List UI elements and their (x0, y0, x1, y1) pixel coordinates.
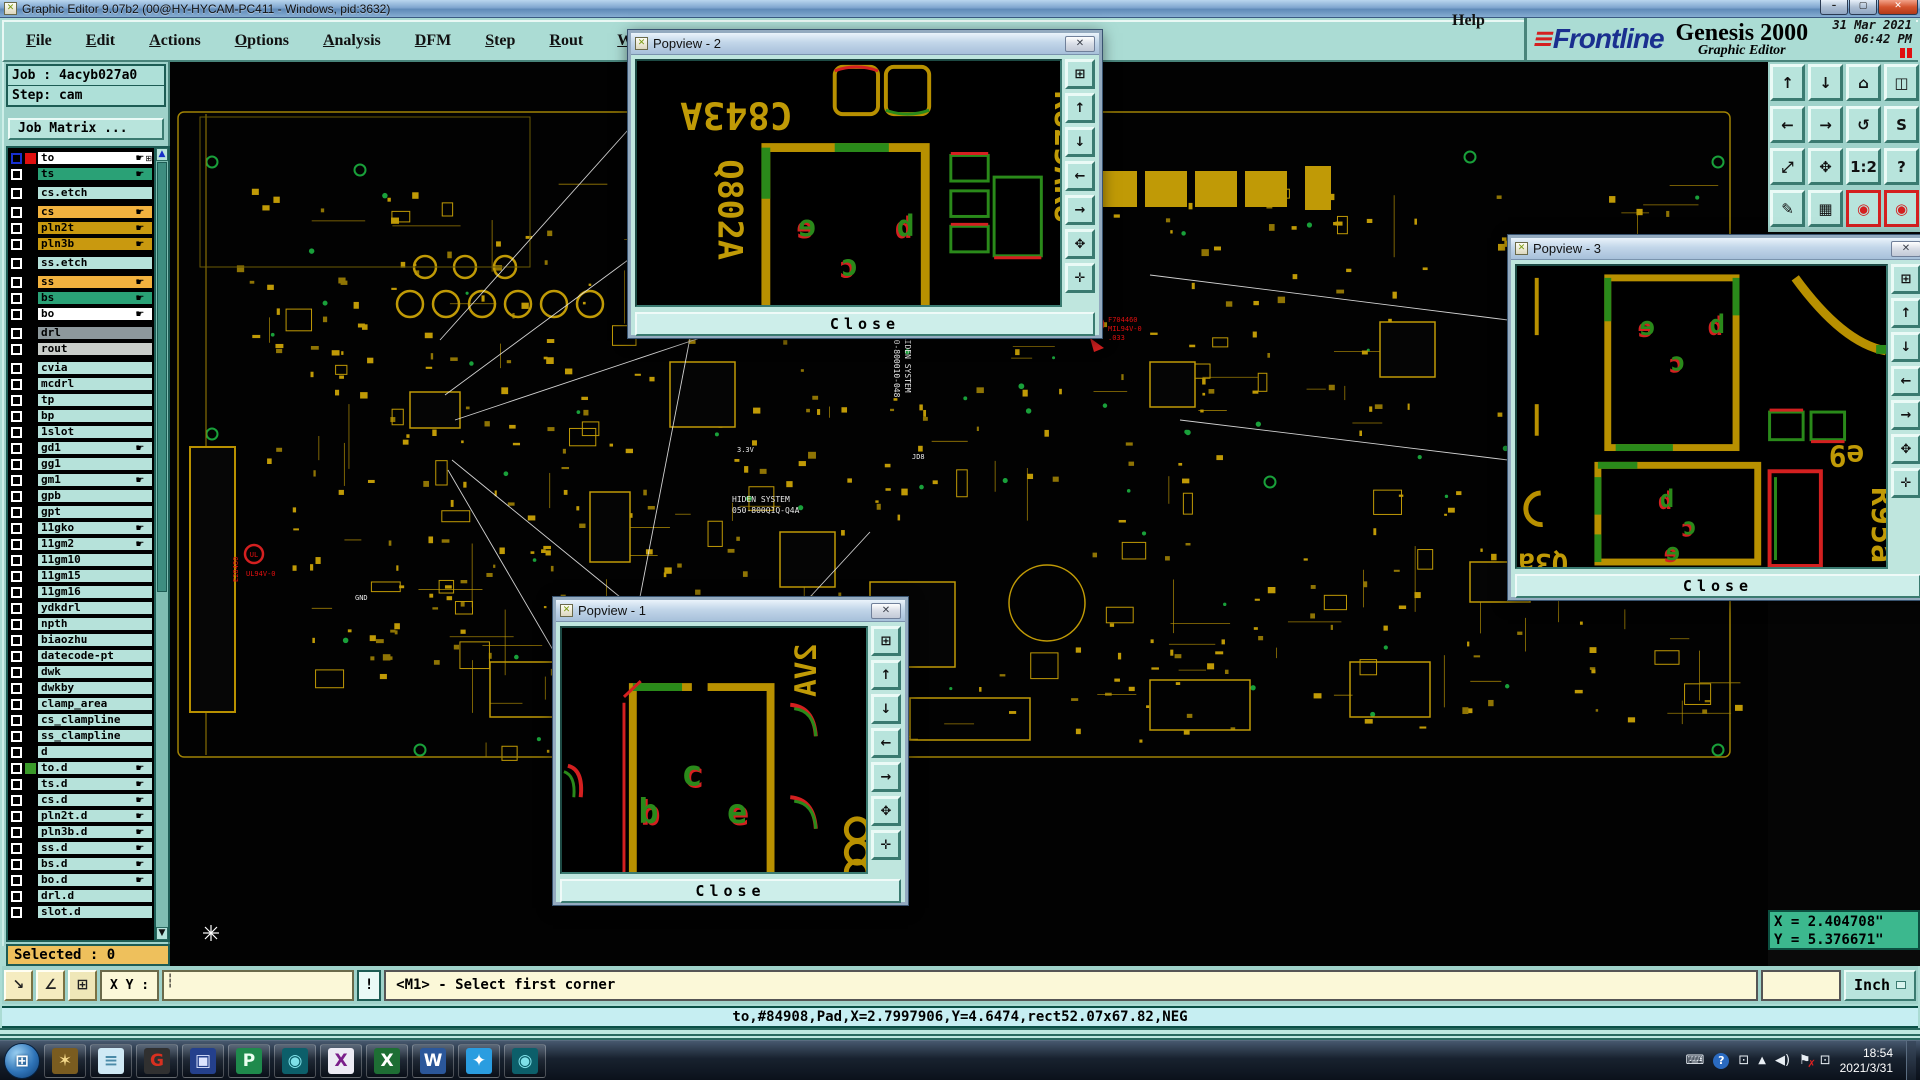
layer-row[interactable]: ss ☛ ⊞ (11, 276, 152, 288)
menu-item[interactable]: Options (235, 32, 289, 50)
layer-row[interactable]: ts ☛ ⊞ (11, 168, 152, 180)
layer-name[interactable]: gpb (41, 490, 135, 502)
layer-color-chip (25, 619, 36, 630)
layer-name[interactable]: 11gko (41, 522, 135, 534)
popview-3-close-button[interactable]: Close (1515, 574, 1920, 598)
center-view-button[interactable]: ✥ (1808, 148, 1843, 185)
layer-visibility-checkbox[interactable] (11, 239, 22, 250)
layer-row[interactable]: rout ☛ ⊞ (11, 343, 152, 355)
taskbar-app-p[interactable]: P (228, 1044, 270, 1078)
layer-name[interactable]: clamp_area (41, 698, 135, 710)
layer-row[interactable]: 11gm16 ☛ ⊞ (11, 586, 152, 598)
layer-name[interactable]: ts (41, 168, 135, 180)
center-button[interactable]: ✛ (871, 830, 901, 860)
layer-name[interactable]: bp (41, 410, 135, 422)
layer-row[interactable]: cs_clampline ☛ ⊞ (11, 714, 152, 726)
scroll-up-icon[interactable]: ▲ (156, 148, 168, 161)
layer-row[interactable]: ss.etch ☛ ⊞ (11, 257, 152, 269)
popview-tool-icon: ↑ (1901, 306, 1912, 321)
view-toolbar: ↑ ↓ ⌂ ◫ ← → (1768, 62, 1920, 232)
layer-color-chip (25, 395, 36, 406)
taskbar-app-icon: ◉ (512, 1048, 538, 1074)
frontline-wordmark: Frontline (1553, 23, 1664, 55)
scale-1-2-button[interactable]: 1:2 (1846, 148, 1881, 185)
layer-visibility-checkbox[interactable] (11, 188, 22, 199)
scroll-thumb[interactable] (157, 162, 167, 592)
query-button[interactable]: ? (1884, 148, 1919, 185)
layer-name[interactable]: npth (41, 618, 135, 630)
layer-visibility-checkbox[interactable] (11, 223, 22, 234)
layer-visibility-checkbox[interactable] (11, 875, 22, 886)
popview-1-titlebar[interactable]: ✕ Popview - 1 ✕ (556, 600, 905, 622)
layer-color-chip (25, 587, 36, 598)
layer-name[interactable]: slot.d (41, 906, 135, 918)
svg-text:e: e (1666, 538, 1680, 566)
zoom-fit-button[interactable]: ✥ (871, 796, 901, 826)
layer-row[interactable]: drl ☛ ⊞ (11, 327, 152, 339)
pan-up-button[interactable]: ↑ (871, 660, 901, 690)
popview-2-close-button[interactable]: Close (635, 312, 1095, 336)
taskbar-app-icon: P (236, 1048, 262, 1074)
popview-2-title: Popview - 2 (653, 36, 1060, 51)
layer-name[interactable]: cs (41, 206, 135, 218)
layer-name[interactable]: cs.etch (41, 187, 135, 199)
layer-scrollbar[interactable]: ▲ ▼ (154, 148, 168, 940)
layer-visibility-checkbox[interactable] (11, 427, 22, 438)
layer-name[interactable]: bs (41, 292, 135, 304)
layer-visibility-checkbox[interactable] (11, 603, 22, 614)
layer-row[interactable]: pln3b.d ☛ ⊞ (11, 826, 152, 838)
popview-2-titlebar[interactable]: ✕ Popview - 2 ✕ (631, 33, 1099, 55)
layer-color-chip (25, 555, 36, 566)
popview-1-toolbar: ⊞↑↓←→✥✛ (871, 626, 901, 874)
layer-visibility-checkbox[interactable] (11, 651, 22, 662)
pan-up-button[interactable]: ↑ (1065, 93, 1095, 123)
layer-name[interactable]: 11gm10 (41, 554, 135, 566)
taskbar-app-messenger[interactable]: ✦ (458, 1044, 500, 1078)
layer-name[interactable]: gg1 (41, 458, 135, 470)
pan-down-button[interactable]: ↓ (1891, 332, 1920, 362)
layer-name[interactable]: ss.d (41, 842, 135, 854)
scroll-down-icon[interactable]: ▼ (156, 927, 168, 940)
layer-row[interactable]: cs.d ☛ ⊞ (11, 794, 152, 806)
pan-up-button[interactable]: ↑ (1891, 298, 1920, 328)
pan-right-button[interactable]: → (871, 762, 901, 792)
layer-hand-icon: ☛ (135, 277, 144, 288)
layer-name[interactable]: 11gm2 (41, 538, 135, 550)
layer-row[interactable]: bo.d ☛ ⊞ (11, 874, 152, 886)
layer-row[interactable]: bp ☛ ⊞ (11, 410, 152, 422)
layer-name[interactable]: rout (41, 343, 135, 355)
layer-name[interactable]: datecode-pt (41, 650, 135, 662)
menu-item[interactable]: Step (485, 32, 515, 50)
hidden-icons-chevron[interactable]: ▲ (1758, 1055, 1766, 1066)
layer-color-chip (25, 571, 36, 582)
layer-visibility-checkbox[interactable] (11, 891, 22, 902)
menu-item[interactable]: Rout (549, 32, 583, 50)
layer-visibility-checkbox[interactable] (11, 907, 22, 918)
layer-visibility-checkbox[interactable] (11, 475, 22, 486)
close-icon[interactable]: ✕ (1891, 241, 1920, 257)
popview-2-window[interactable]: ✕ Popview - 2 ✕ C843A Q802A R825AR8 (628, 30, 1102, 338)
units-button[interactable]: Inch (1844, 970, 1916, 1001)
svg-text:c: c (841, 248, 859, 282)
popview-1-window[interactable]: ✕ Popview - 1 ✕ b b c c (553, 597, 908, 905)
layer-name[interactable]: tp (41, 394, 135, 406)
split-window-xy-button[interactable]: ◫ (1884, 64, 1919, 101)
layer-visibility-checkbox[interactable] (11, 827, 22, 838)
layer-visibility-checkbox[interactable] (11, 328, 22, 339)
popview-tool-icon: ✛ (881, 838, 892, 853)
layer-visibility-checkbox[interactable] (11, 635, 22, 646)
xy-input[interactable]: ┆ (162, 970, 354, 1001)
menu-item[interactable]: File (26, 32, 52, 50)
zoom-fit-button[interactable]: ✥ (1065, 229, 1095, 259)
layer-color-chip (25, 223, 36, 234)
gnd-label: GND (355, 594, 368, 602)
volume-icon[interactable]: ◀) (1775, 1053, 1790, 1068)
toolbar-icon: ↓ (1819, 74, 1832, 92)
popview-1-close-button[interactable]: Close (560, 879, 901, 903)
layer-row[interactable]: dwkby ☛ ⊞ (11, 682, 152, 694)
toolbar-icon: ↑ (1781, 74, 1794, 92)
taskbar-app-icon: ≡ (98, 1048, 124, 1074)
minimize-icon[interactable]: – (1820, 0, 1848, 15)
menu-item[interactable]: Actions (149, 32, 201, 50)
menu-item[interactable]: DFM (415, 32, 451, 50)
center-button[interactable]: ✛ (1065, 263, 1095, 293)
svg-text:b: b (639, 792, 659, 831)
layer-visibility-checkbox[interactable] (11, 587, 22, 598)
layer-visibility-checkbox[interactable] (11, 153, 22, 164)
layer-visibility-checkbox[interactable] (11, 507, 22, 518)
popview-3-canvas[interactable]: e e c c b b b b (1515, 264, 1888, 569)
pan-down-button[interactable]: ↓ (1808, 64, 1843, 101)
layer-color-chip (25, 207, 36, 218)
keyboard-tray-icon[interactable]: ⌨ (1686, 1053, 1705, 1068)
layer-visibility-checkbox[interactable] (11, 491, 22, 502)
taskbar-app-excel[interactable]: X (366, 1044, 408, 1078)
layer-row[interactable]: 11gm2 ☛ ⊞ (11, 538, 152, 550)
layer-name[interactable]: d (41, 746, 135, 758)
show-desktop-button[interactable] (1906, 1041, 1916, 1080)
layer-name[interactable]: gpt (41, 506, 135, 518)
toolbar-icon: ⤢ (1781, 158, 1793, 176)
layer-name[interactable]: drl.d (41, 890, 135, 902)
layer-color-chip (25, 667, 36, 678)
layer-color-chip (25, 309, 36, 320)
layer-name[interactable]: mcdrl (41, 378, 135, 390)
pause-icon[interactable] (1898, 47, 1912, 61)
layer-row[interactable]: bs.d ☛ ⊞ (11, 858, 152, 870)
layer-name[interactable]: ss.etch (41, 257, 135, 269)
measure-distance-icon[interactable]: ↘ (4, 970, 33, 1001)
job-matrix-button[interactable]: Job Matrix ... (8, 118, 164, 140)
layer-name[interactable]: cs_clampline (41, 714, 135, 726)
taskbar-app-cam[interactable]: ◉ (274, 1044, 316, 1078)
layer-row[interactable]: npth ☛ ⊞ (11, 618, 152, 630)
layer-hand-icon: ☛ (135, 309, 144, 320)
maximize-icon[interactable]: ▢ (1849, 0, 1877, 15)
close-icon[interactable]: ✕ (1065, 36, 1095, 52)
taskbar-app-save[interactable]: ▣ (182, 1044, 224, 1078)
layer-row[interactable]: slot.d ☛ ⊞ (11, 906, 152, 918)
layer-visibility-checkbox[interactable] (11, 619, 22, 630)
layer-name[interactable]: 11gm15 (41, 570, 135, 582)
toolbar-icon: → (1819, 116, 1832, 134)
layer-row[interactable]: pln2t.d ☛ ⊞ (11, 810, 152, 822)
layer-row[interactable]: ss.d ☛ ⊞ (11, 842, 152, 854)
layer-row[interactable]: 1slot ☛ ⊞ (11, 426, 152, 438)
taskbar-app-g[interactable]: G (136, 1044, 178, 1078)
layer-visibility-checkbox[interactable] (11, 779, 22, 790)
layer-name[interactable]: dwkby (41, 682, 135, 694)
layer-row[interactable]: dwk ☛ ⊞ (11, 666, 152, 678)
popview-3-titlebar[interactable]: ✕ Popview - 3 ✕ (1511, 238, 1920, 260)
layer-color-chip (25, 411, 36, 422)
home-view-button[interactable]: ⌂ (1846, 64, 1881, 101)
layer-row[interactable]: to ☛ ⊞ (11, 152, 152, 164)
layer-name[interactable]: bo.d (41, 874, 135, 886)
layer-visibility-checkbox[interactable] (11, 459, 22, 470)
taskbar-app-cam2[interactable]: ◉ (504, 1044, 546, 1078)
popview-2-toolbar: ⊞↑↓←→✥✛ (1065, 59, 1095, 307)
center-button[interactable]: ✛ (1891, 468, 1920, 498)
layer-row[interactable]: gm1 ☛ ⊞ (11, 474, 152, 486)
help-tray-icon[interactable]: ? (1713, 1053, 1729, 1069)
pan-left-button[interactable]: ← (1770, 106, 1805, 143)
previous-view-button[interactable]: ↺ (1846, 106, 1881, 143)
layer-name[interactable]: bs.d (41, 858, 135, 870)
layer-row[interactable]: bo ☛ ⊞ (11, 308, 152, 320)
layer-name[interactable]: pln2t (41, 222, 135, 234)
layer-color-chip (25, 169, 36, 180)
prompt-warning-icon[interactable]: ! (357, 970, 381, 1001)
popview-tool-icon: ⊞ (881, 634, 892, 649)
layer-name[interactable]: ss (41, 276, 135, 288)
layer-visibility-checkbox[interactable] (11, 699, 22, 710)
layer-row[interactable]: ts.d ☛ ⊞ (11, 778, 152, 790)
layer-name[interactable]: cvia (41, 362, 135, 374)
net-highlight-front-button[interactable]: ◉ (1846, 190, 1881, 227)
layer-visibility-checkbox[interactable] (11, 667, 22, 678)
popview-2-canvas[interactable]: C843A Q802A R825AR8 e e c c (635, 59, 1062, 307)
layer-name[interactable]: cs.d (41, 794, 135, 806)
layer-color-chip (25, 795, 36, 806)
layer-name[interactable]: to (41, 152, 135, 164)
taskbar-app-icon: X (328, 1048, 354, 1074)
start-button[interactable]: ⊞ (4, 1043, 40, 1079)
pan-left-button[interactable]: ← (1065, 161, 1095, 191)
layer-visibility-checkbox[interactable] (11, 555, 22, 566)
layer-visibility-checkbox[interactable] (11, 395, 22, 406)
layer-color-chip (25, 779, 36, 790)
pan-right-button[interactable]: → (1065, 195, 1095, 225)
layer-visibility-checkbox[interactable] (11, 747, 22, 758)
detach-view-button[interactable]: ⊞ (1065, 59, 1095, 89)
layer-row[interactable]: bs ☛ ⊞ (11, 292, 152, 304)
clock[interactable]: 18:542021/3/31 (1840, 1046, 1897, 1076)
layer-name[interactable]: to.d (41, 762, 135, 774)
layer-row[interactable]: gd1 ☛ ⊞ (11, 442, 152, 454)
edge-connector (190, 447, 235, 712)
layer-color-chip (25, 603, 36, 614)
popview-tool-icon: ✥ (1075, 237, 1086, 252)
pan-down-button[interactable]: ↓ (1065, 127, 1095, 157)
pan-right-button[interactable]: → (1808, 106, 1843, 143)
svg-text:Q3a: Q3a (1518, 547, 1568, 569)
taskbar-app-xserver[interactable]: X (320, 1044, 362, 1078)
pan-left-button[interactable]: ← (1891, 366, 1920, 396)
close-icon[interactable]: ✕ (1878, 0, 1918, 15)
layer-visibility-checkbox[interactable] (11, 443, 22, 454)
layer-row[interactable]: gg1 ☛ ⊞ (11, 458, 152, 470)
layer-row[interactable]: datecode-pt ☛ ⊞ (11, 650, 152, 662)
layer-name[interactable]: 11gm16 (41, 586, 135, 598)
layer-row[interactable]: pln3b ☛ ⊞ (11, 238, 152, 250)
layer-name[interactable]: gd1 (41, 442, 135, 454)
layer-name[interactable]: ydkdrl (41, 602, 135, 614)
window-titlebar[interactable]: ✕ Graphic Editor 9.07b2 (00@HY-HYCAM-PC4… (0, 0, 1920, 18)
serpentine-button[interactable]: S (1884, 106, 1919, 143)
layer-visibility-checkbox[interactable] (11, 795, 22, 806)
layer-color-chip (25, 827, 36, 838)
layer-color-chip (25, 843, 36, 854)
layer-row[interactable]: drl.d ☛ ⊞ (11, 890, 152, 902)
layer-visibility-checkbox[interactable] (11, 169, 22, 180)
toolbar-icon: ✎ (1781, 200, 1794, 218)
layer-row[interactable]: 11gko ☛ ⊞ (11, 522, 152, 534)
layer-row[interactable]: clamp_area ☛ ⊞ (11, 698, 152, 710)
layer-row[interactable]: d ☛ ⊞ (11, 746, 152, 758)
layer-visibility-checkbox[interactable] (11, 731, 22, 742)
prompt-message: <M1> - Select first corner (384, 970, 1758, 1001)
layer-row[interactable]: biaozhu ☛ ⊞ (11, 634, 152, 646)
matrix-grid-icon[interactable]: ⊞ (68, 970, 97, 1001)
layer-visibility-checkbox[interactable] (11, 539, 22, 550)
layer-row[interactable]: ydkdrl ☛ ⊞ (11, 602, 152, 614)
layer-visibility-checkbox[interactable] (11, 859, 22, 870)
pan-up-button[interactable]: ↑ (1770, 64, 1805, 101)
layer-name[interactable]: 1slot (41, 426, 135, 438)
layer-row[interactable]: 11gm15 ☛ ⊞ (11, 570, 152, 582)
popview-1-canvas[interactable]: b b c c e e 2VA (560, 626, 868, 874)
menu-item[interactable]: Edit (86, 32, 115, 50)
layer-name[interactable]: dwk (41, 666, 135, 678)
pan-left-button[interactable]: ← (871, 728, 901, 758)
layer-visibility-checkbox[interactable] (11, 571, 22, 582)
layer-row[interactable]: to.d ☛ ⊞ (11, 762, 152, 774)
layer-visibility-checkbox[interactable] (11, 363, 22, 374)
layer-row[interactable]: mcdrl ☛ ⊞ (11, 378, 152, 390)
layer-color-chip (25, 491, 36, 502)
measure-angle-icon[interactable]: ∠ (36, 970, 65, 1001)
close-icon[interactable]: ✕ (871, 603, 901, 619)
layer-name[interactable]: pln3b (41, 238, 135, 250)
layer-row[interactable]: pln2t ☛ ⊞ (11, 222, 152, 234)
svg-text:E28480: E28480 (232, 557, 240, 582)
svg-text:e: e (1640, 312, 1655, 342)
action-center-flag-icon[interactable]: ⚑✗ (1799, 1053, 1811, 1068)
layer-visibility-checkbox[interactable] (11, 523, 22, 534)
layer-name[interactable]: pln2t.d (41, 810, 135, 822)
taskbar-app-notes[interactable]: ≡ (90, 1044, 132, 1078)
layer-row[interactable]: ss_clampline ☛ ⊞ (11, 730, 152, 742)
detach-view-button[interactable]: ⊞ (871, 626, 901, 656)
layer-row[interactable]: gpt ☛ ⊞ (11, 506, 152, 518)
layer-visibility-checkbox[interactable] (11, 258, 22, 269)
zoom-fit-button[interactable]: ✥ (1891, 434, 1920, 464)
layer-row[interactable]: tp ☛ ⊞ (11, 394, 152, 406)
layer-name[interactable]: biaozhu (41, 634, 135, 646)
layer-name[interactable]: drl (41, 327, 135, 339)
layer-row[interactable]: cs.etch ☛ ⊞ (11, 187, 152, 199)
layer-visibility-checkbox[interactable] (11, 207, 22, 218)
taskbar-app-word[interactable]: W (412, 1044, 454, 1078)
layer-color-chip (25, 153, 36, 164)
layer-visibility-checkbox[interactable] (11, 763, 22, 774)
menu-item-help[interactable]: Help (1452, 12, 1485, 30)
layer-hand-icon: ☛ (135, 223, 144, 234)
net-highlight-back-button[interactable]: ◉ (1884, 190, 1919, 227)
layer-hand-icon: ☛ (135, 443, 144, 454)
layer-visibility-checkbox[interactable] (11, 344, 22, 355)
layer-visibility-checkbox[interactable] (11, 411, 22, 422)
window-title: Graphic Editor 9.07b2 (00@HY-HYCAM-PC411… (22, 2, 390, 16)
svg-text:C843A: C843A (680, 93, 793, 137)
popview-tool-icon: ⊞ (1075, 67, 1086, 82)
layer-visibility-checkbox[interactable] (11, 309, 22, 320)
menu-item[interactable]: Analysis (323, 32, 381, 50)
layer-list: to ☛ ⊞ ts ☛ ⊞ (8, 148, 154, 940)
silkscreen-label-vertical: TAIDEN SYSTEM D50-800010-048 (892, 330, 912, 398)
network-icon[interactable]: ⊡ (1820, 1053, 1831, 1068)
layer-hand-icon: ☛ (135, 293, 144, 304)
layer-visibility-checkbox[interactable] (11, 715, 22, 726)
layer-name[interactable]: bo (41, 308, 135, 320)
layer-color-chip (25, 763, 36, 774)
layer-name[interactable]: gm1 (41, 474, 135, 486)
layer-name[interactable]: ss_clampline (41, 730, 135, 742)
layer-name[interactable]: ts.d (41, 778, 135, 790)
v33-label: 3.3V (737, 446, 755, 454)
layer-visibility-checkbox[interactable] (11, 293, 22, 304)
zoom-extents-button[interactable]: ⤢ (1770, 148, 1805, 185)
pan-right-button[interactable]: → (1891, 400, 1920, 430)
window-tray-icon[interactable]: ⊡ (1738, 1053, 1749, 1068)
units-indicator (1896, 981, 1906, 989)
setup-tools-button[interactable]: ✎ (1770, 190, 1805, 227)
layer-row[interactable]: cvia ☛ ⊞ (11, 362, 152, 374)
menu-items: FileEditActionsOptionsAnalysisDFMStepRou… (4, 32, 681, 50)
layer-row[interactable]: 11gm10 ☛ ⊞ (11, 554, 152, 566)
popview-3-window[interactable]: ✕ Popview - 3 ✕ e e c c (1508, 235, 1920, 600)
layer-row[interactable]: cs ☛ ⊞ (11, 206, 152, 218)
layer-visibility-checkbox[interactable] (11, 379, 22, 390)
pan-down-button[interactable]: ↓ (871, 694, 901, 724)
layer-hand-icon: ☛ (135, 207, 144, 218)
taskbar-app-shell[interactable]: ✶ (44, 1044, 86, 1078)
layer-color-chip (25, 277, 36, 288)
grid-button[interactable]: ▦ (1808, 190, 1843, 227)
detach-view-button[interactable]: ⊞ (1891, 264, 1920, 294)
layer-visibility-checkbox[interactable] (11, 683, 22, 694)
layer-visibility-checkbox[interactable] (11, 811, 22, 822)
layer-visibility-checkbox[interactable] (11, 277, 22, 288)
layer-visibility-checkbox[interactable] (11, 843, 22, 854)
layer-name[interactable]: pln3b.d (41, 826, 135, 838)
layer-row[interactable]: gpb ☛ ⊞ (11, 490, 152, 502)
